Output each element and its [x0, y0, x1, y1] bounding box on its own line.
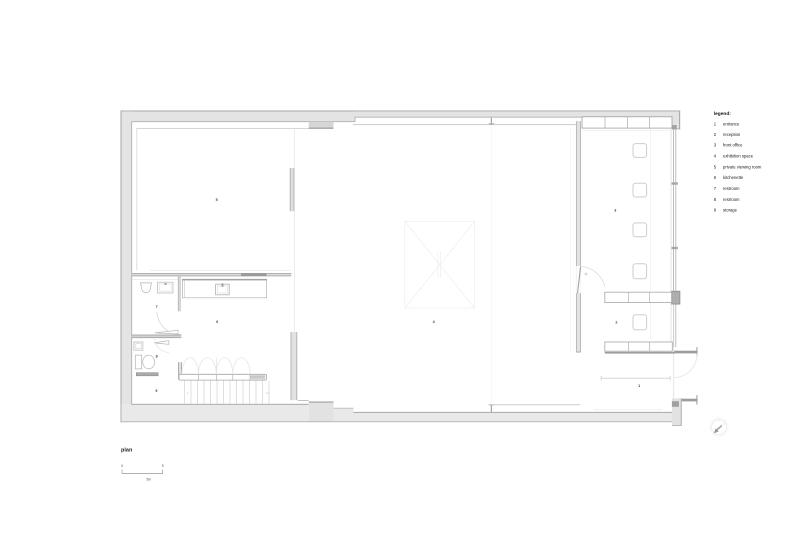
svg-text:reception: reception — [723, 132, 741, 137]
svg-text:restroom: restroom — [723, 186, 740, 191]
svg-text:1: 1 — [638, 384, 640, 388]
svg-text:exhibition space: exhibition space — [723, 154, 754, 159]
svg-text:8: 8 — [156, 354, 158, 358]
svg-text:2: 2 — [714, 132, 717, 137]
svg-text:4: 4 — [433, 320, 436, 324]
svg-text:legend:: legend: — [714, 111, 731, 117]
svg-text:storage: storage — [723, 208, 738, 213]
svg-text:front office: front office — [723, 143, 743, 148]
svg-text:entrance: entrance — [723, 121, 740, 126]
svg-text:8: 8 — [714, 197, 717, 202]
svg-text:14: 14 — [266, 391, 269, 395]
svg-text:4: 4 — [714, 154, 717, 159]
svg-text:1: 1 — [187, 391, 189, 395]
svg-text:kitchenette: kitchenette — [723, 175, 744, 180]
svg-text:3: 3 — [614, 209, 616, 213]
svg-text:restroom: restroom — [723, 197, 740, 202]
svg-text:7: 7 — [156, 305, 158, 309]
svg-text:private viewing room: private viewing room — [723, 164, 762, 169]
svg-text:2: 2 — [615, 321, 617, 325]
svg-text:3: 3 — [714, 143, 717, 148]
svg-text:6: 6 — [714, 175, 717, 180]
svg-text:5: 5 — [216, 198, 218, 202]
svg-text:1: 1 — [714, 121, 717, 126]
svg-text:0: 0 — [121, 464, 123, 468]
svg-text:9: 9 — [155, 389, 157, 393]
svg-text:plan: plan — [121, 447, 133, 453]
svg-text:7: 7 — [714, 186, 717, 191]
svg-text:5: 5 — [714, 164, 717, 169]
svg-text:9: 9 — [714, 208, 717, 213]
svg-text:5m: 5m — [146, 477, 151, 481]
svg-text:5: 5 — [162, 464, 164, 468]
svg-text:6: 6 — [216, 320, 218, 324]
